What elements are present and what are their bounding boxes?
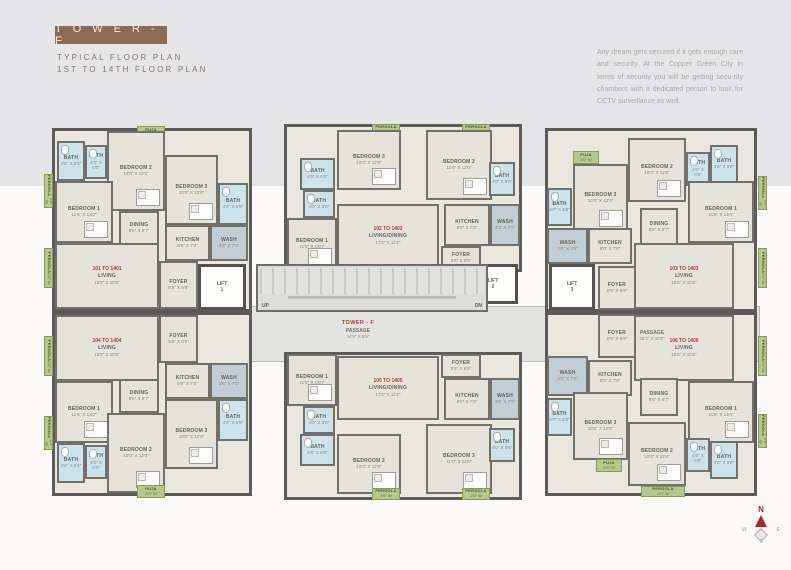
u104-living: 104 TO 1404LIVING15'6" X 10'6" xyxy=(55,315,159,381)
toilet-icon xyxy=(304,438,312,448)
u105-kitchen: KITCHEN8'6" X 7'0" xyxy=(444,378,490,420)
u103-living: 103 TO 1403LIVING15'6" X 10'6" xyxy=(634,243,734,309)
lift-1: LIFT1 xyxy=(198,264,246,310)
u104-dining: DINING8'6" X 6'7" xyxy=(119,379,159,413)
staircase: UP DN xyxy=(256,264,488,312)
u105-wash: WASH3'6" X 7'0" xyxy=(490,378,520,420)
bed-icon xyxy=(189,447,213,464)
u103-pergola-right-2: PERGOLA2'0" W xyxy=(758,248,767,288)
toilet-icon xyxy=(89,149,97,159)
u101-pergola-left-1: PERGOLA2'0" W xyxy=(44,174,53,208)
bed-icon xyxy=(599,438,623,455)
u106-pergola-right-2: PERGOLA2'0" W xyxy=(758,414,767,448)
u104-kitchen: KITCHEN8'6" X 7'0" xyxy=(165,363,210,399)
u105-living-dining: 105 TO 1405LIVING/DINING17'6" X 11'2" xyxy=(337,356,439,420)
u105-bath-1: BATH4'0" X 6'0" xyxy=(300,434,335,466)
toilet-icon xyxy=(714,149,722,159)
u101-kitchen: KITCHEN8'6" X 7'0" xyxy=(165,225,210,261)
u104-bedroom-1: BEDROOM 111'6" X 13'0" xyxy=(55,381,113,443)
toilet-icon xyxy=(304,162,312,172)
u103-bath-3: BATH4'0" X 6'6" xyxy=(547,188,572,226)
u105-pergola-1: PERGOLA2'0" W xyxy=(372,488,400,500)
u101-bath-2: BATH4'0" X 6'0" xyxy=(85,145,107,179)
u106-bath-1: BATH4'0" X 6'6" xyxy=(686,438,710,472)
u103-kitchen: KITCHEN8'0" X 7'0" xyxy=(588,228,632,264)
bed-icon xyxy=(599,210,623,227)
passage2-label: PASSAGE 36'3" X 10'0" xyxy=(610,328,694,341)
u105-bath-3: BATH4'0" X 6'6" xyxy=(489,428,515,462)
u101-bath-3: BATH4'6" X 6'6" xyxy=(218,183,248,225)
u104-bedroom-3: BEDROOM 310'0" X 12'0" xyxy=(165,399,218,469)
compass: N W E S xyxy=(736,505,786,563)
bed-icon xyxy=(84,421,108,438)
toilet-icon xyxy=(307,410,315,420)
u104-bath-3: BATH4'6" X 6'6" xyxy=(218,399,248,441)
bed-icon xyxy=(136,189,160,206)
stair-dn-label: DN xyxy=(475,303,482,309)
u102-bedroom-3: BEDROOM 310'0" X 12'0" xyxy=(337,130,401,190)
toilet-icon xyxy=(222,403,230,413)
u104-wash: WASH3'6" X 7'0" xyxy=(210,363,248,399)
passage-dims: 44'9" X 5'5" xyxy=(320,334,396,339)
compass-south-label: S xyxy=(759,539,762,545)
u101-bedroom-3: BEDROOM 310'0" X 12'0" xyxy=(165,155,218,225)
u102-bedroom-2: BEDROOM 211'0" X 12'0" xyxy=(426,130,492,200)
u104-puja: PUJA2'0" W xyxy=(137,485,165,498)
bed-icon xyxy=(372,168,396,185)
u103-pergola-right-1: PERGOLA2'0" W xyxy=(758,176,767,210)
u102-bedroom-1: BEDROOM 111'6" X 13'0" xyxy=(287,218,337,270)
toilet-icon xyxy=(690,442,698,452)
bed-icon xyxy=(657,464,681,481)
u106-pergola-right-1: PERGOLA2'0" W xyxy=(758,336,767,376)
toilet-icon xyxy=(493,166,501,176)
toilet-icon xyxy=(551,402,559,412)
u106-kitchen: KITCHEN8'0" X 7'0" xyxy=(588,360,632,396)
u105-foyer: FOYER5'6" X 6'9" xyxy=(441,354,481,378)
toilet-icon xyxy=(551,192,559,202)
bed-icon xyxy=(657,180,681,197)
u102-living-dining: 102 TO 1402LIVING/DINING17'6" X 11'2" xyxy=(337,204,439,268)
u102-wash: WASH3'0" X 7'0" xyxy=(490,204,520,246)
compass-north-label: N xyxy=(758,505,764,514)
toilet-icon xyxy=(61,145,69,155)
passage2-dims: 36'3" X 10'0" xyxy=(610,336,694,341)
u102-bath-1: BATH4'0" X 6'0" xyxy=(300,158,335,190)
u105-bath-2: BATH4'0" X 6'0" xyxy=(303,406,335,434)
bed-icon xyxy=(308,248,332,265)
u104-pergola-left-2: PERGOLA2'0" W xyxy=(44,416,53,450)
u106-bath-3: BATH4'0" X 6'6" xyxy=(547,398,572,436)
u104-bath-1: BATH4'6" X 6'6" xyxy=(57,443,85,483)
bed-icon xyxy=(372,472,396,489)
toilet-icon xyxy=(690,156,698,166)
toilet-icon xyxy=(307,194,315,204)
u101-wash: WASH3'6" X 7'0" xyxy=(210,225,248,261)
tower-passage-label: TOWER - F PASSAGE 44'9" X 5'5" xyxy=(320,320,396,339)
u106-bedroom-2: BEDROOM 210'0" X 12'0" xyxy=(628,422,686,486)
u106-dining: DINING8'6" X 6'7" xyxy=(640,378,678,416)
toilet-icon xyxy=(222,187,230,197)
stair-up-label: UP xyxy=(262,303,269,309)
u101-dining: DINING8'6" X 6'7" xyxy=(119,211,159,245)
u104-bath-2: BATH4'0" X 6'0" xyxy=(85,445,107,479)
bed-icon xyxy=(725,221,749,238)
bed-icon xyxy=(84,221,108,238)
u105-bedroom-1: BEDROOM 111'6" X 13'0" xyxy=(287,354,337,406)
u102-kitchen: KITCHEN8'6" X 7'0" xyxy=(444,204,490,246)
stair-steps-icon xyxy=(260,268,484,294)
u101-bath-1: BATH4'6" X 6'6" xyxy=(57,141,85,181)
u106-puja: PUJA2'0" W xyxy=(596,459,622,472)
u101-bedroom-1: BEDROOM 111'6" X 13'0" xyxy=(55,181,113,243)
u106-bedroom-1: BEDROOM 111'6" X 13'0" xyxy=(688,381,754,443)
toilet-icon xyxy=(89,449,97,459)
compass-east-label: E xyxy=(777,527,780,533)
bed-icon xyxy=(463,472,487,489)
u106-bedroom-3: BEDROOM 310'0" X 12'0" xyxy=(573,392,628,460)
u103-bedroom-2: BEDROOM 210'0" X 12'0" xyxy=(628,138,686,202)
u101-living: 101 TO 1401LIVING15'6" X 10'6" xyxy=(55,243,159,309)
bed-icon xyxy=(463,178,487,195)
u104-pergola-left-1: PERGOLA2'0" W xyxy=(44,336,53,376)
u105-bedroom-2: BEDROOM 210'0" X 12'0" xyxy=(337,434,401,494)
u102-bath-2: BATH4'0" X 6'0" xyxy=(303,190,335,218)
u101-bedroom-2: BEDROOM 210'0" X 12'0" xyxy=(107,131,165,211)
toilet-icon xyxy=(61,447,69,457)
north-arrow-icon xyxy=(755,515,767,527)
u103-puja: PUJA2'0" W xyxy=(573,151,599,164)
u103-bedroom-3: BEDROOM 310'0" X 12'0" xyxy=(573,164,628,232)
u104-foyer: FOYER5'6" X 6'9" xyxy=(159,315,198,363)
toilet-icon xyxy=(714,445,722,455)
bed-icon xyxy=(308,384,332,401)
u103-wash: WASH3'0" X 7'0" xyxy=(547,228,588,264)
u106-bath-2: BATH4'0" X 6'6" xyxy=(710,441,738,479)
u103-bedroom-1: BEDROOM 111'6" X 13'0" xyxy=(688,181,754,243)
u105-pergola-2: PERGOLA2'0" W xyxy=(462,488,490,500)
u103-dining: DINING8'6" X 6'7" xyxy=(640,208,678,246)
u102-bath-3: BATH4'0" X 6'0" xyxy=(489,162,515,196)
u104-bedroom-2: BEDROOM 210'0" X 12'0" xyxy=(107,413,165,493)
u106-living: 106 TO 1406LIVING15'6" X 10'6" xyxy=(634,315,734,381)
u106-pergola-bottom: PERGOLA2'0" W xyxy=(641,486,685,497)
bed-icon xyxy=(189,203,213,220)
tower-name-label: TOWER - F xyxy=(320,320,396,326)
u105-bedroom-3: BEDROOM 311'0" X 12'0" xyxy=(426,424,492,494)
u101-foyer: FOYER5'6" X 6'9" xyxy=(159,261,198,309)
u101-pergola-left-2: PERGOLA2'0" W xyxy=(44,248,53,288)
u103-bath-2: BATH4'6" X 6'6" xyxy=(710,145,738,183)
bed-icon xyxy=(725,421,749,438)
stair-rail xyxy=(288,296,456,299)
toilet-icon xyxy=(493,432,501,442)
u103-foyer: FOYER5'6" X 6'9" xyxy=(598,266,636,310)
u106-wash: WASH3'0" X 7'0" xyxy=(547,356,588,396)
lift-3: LIFT3 xyxy=(549,264,595,310)
compass-west-label: W xyxy=(742,527,747,533)
